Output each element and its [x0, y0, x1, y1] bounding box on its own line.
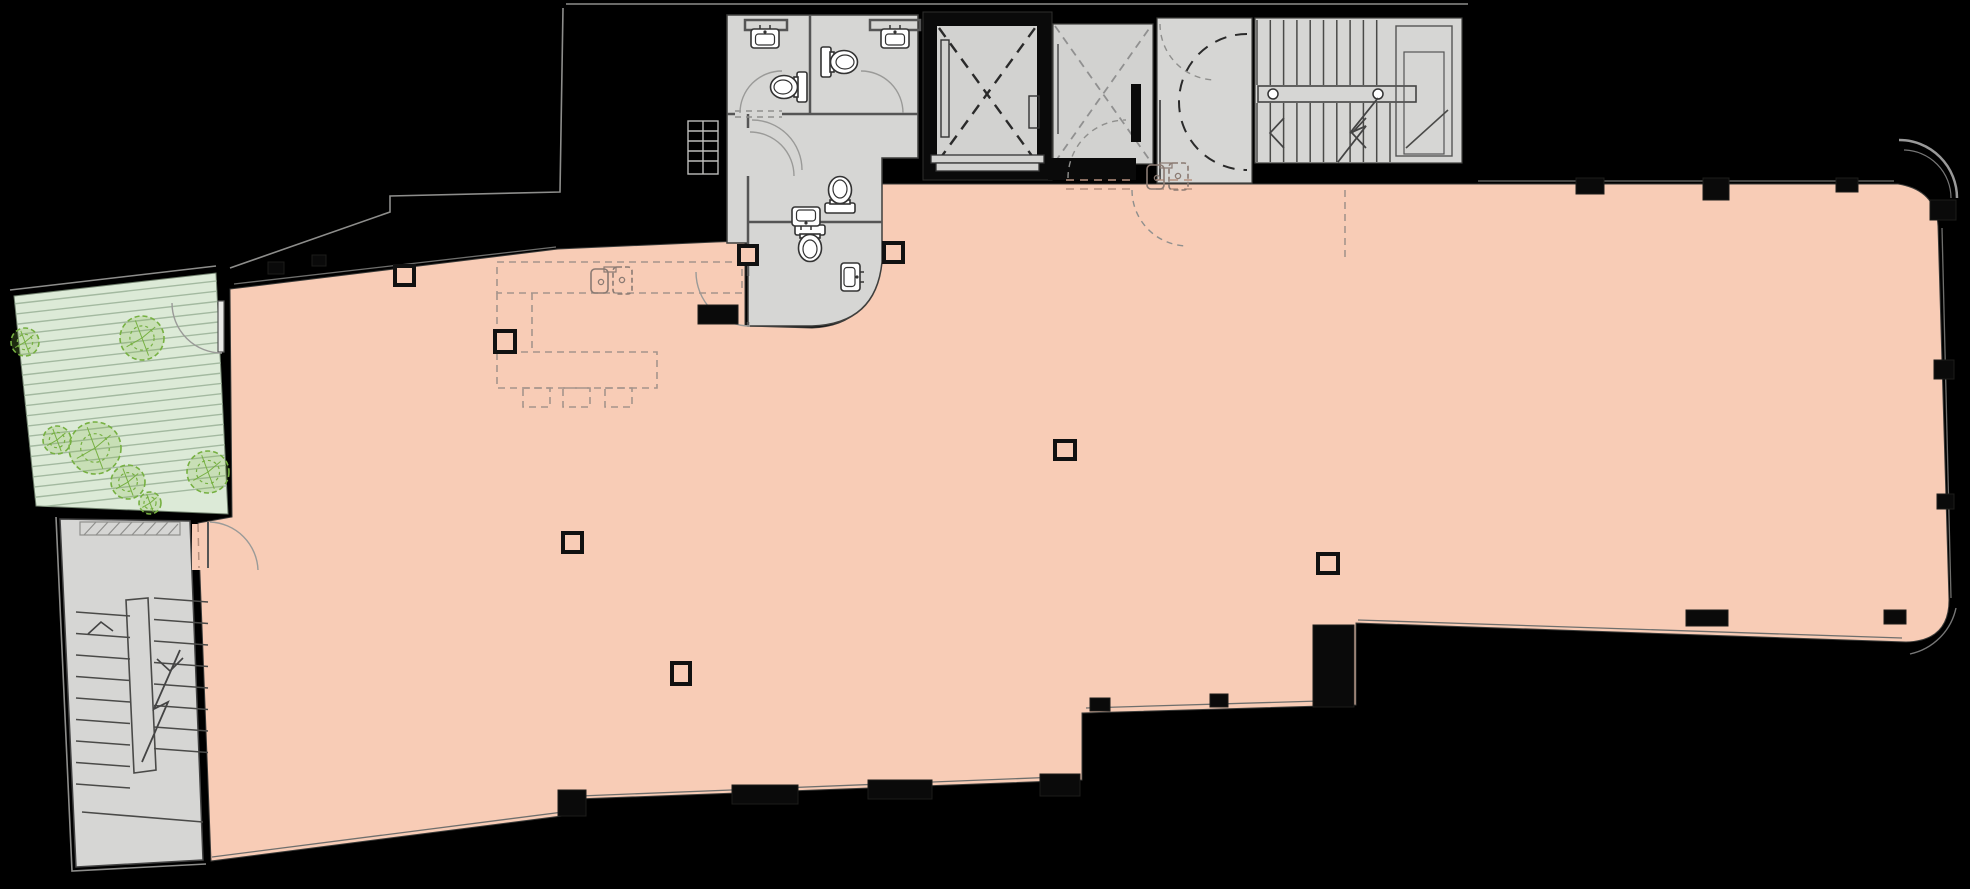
floor-plan-canvas: Open floor plate with terrace, core, ele… [0, 0, 1970, 889]
elevator-door-sill [936, 163, 1039, 171]
sink-icon [792, 207, 820, 230]
elevator-shaft-1 [923, 12, 1052, 180]
shaft-wall [1048, 158, 1136, 180]
plant-icon [120, 316, 164, 360]
sink-icon [841, 263, 864, 291]
wall-pier [312, 255, 326, 266]
roof-terrace [10, 266, 234, 514]
wall-pier [1210, 694, 1228, 707]
wall-pier [1836, 178, 1858, 192]
wall-pier [1313, 625, 1354, 707]
plant-icon [111, 465, 145, 499]
column [495, 331, 515, 352]
wall-pier [558, 790, 586, 816]
wall-pier [698, 305, 738, 324]
wall-pier [1937, 494, 1954, 509]
column [395, 266, 414, 285]
plant-icon [43, 426, 71, 454]
wall-pier [1686, 610, 1728, 626]
column [739, 246, 757, 264]
shaft-wall [1131, 84, 1141, 142]
wall-pier [1884, 610, 1906, 624]
newel-post [1373, 89, 1383, 99]
open-floor-area [198, 184, 1949, 861]
sink-icon [881, 25, 909, 48]
newel-post [1268, 89, 1278, 99]
plant-icon [139, 492, 161, 514]
terrace-door-leaf [218, 301, 224, 352]
floor-plan-svg: Open floor plate with terrace, core, ele… [0, 0, 1970, 889]
wall-pier [268, 262, 284, 274]
plant-icon [187, 451, 229, 493]
wall-pier [1576, 178, 1604, 194]
wall-pier [1703, 178, 1729, 200]
elevator-door-sill [931, 155, 1044, 163]
sink-icon [751, 25, 779, 48]
column [884, 243, 903, 262]
north-stairwell [1255, 18, 1462, 163]
wall-pier [1930, 200, 1956, 220]
column [563, 533, 582, 552]
plant-icon [11, 328, 39, 356]
wall-ladder [688, 121, 718, 174]
column [672, 663, 690, 684]
stair-handrail [1258, 86, 1416, 102]
wall-pier [868, 780, 932, 799]
elevator-shaft-2 [1048, 24, 1153, 180]
wall-pier [1090, 698, 1110, 711]
column [1055, 441, 1075, 459]
plant-icon [69, 422, 121, 474]
column [1318, 554, 1338, 573]
wall-pier [1040, 774, 1080, 796]
wall-pier [1934, 360, 1954, 379]
wall-pier [732, 785, 798, 804]
